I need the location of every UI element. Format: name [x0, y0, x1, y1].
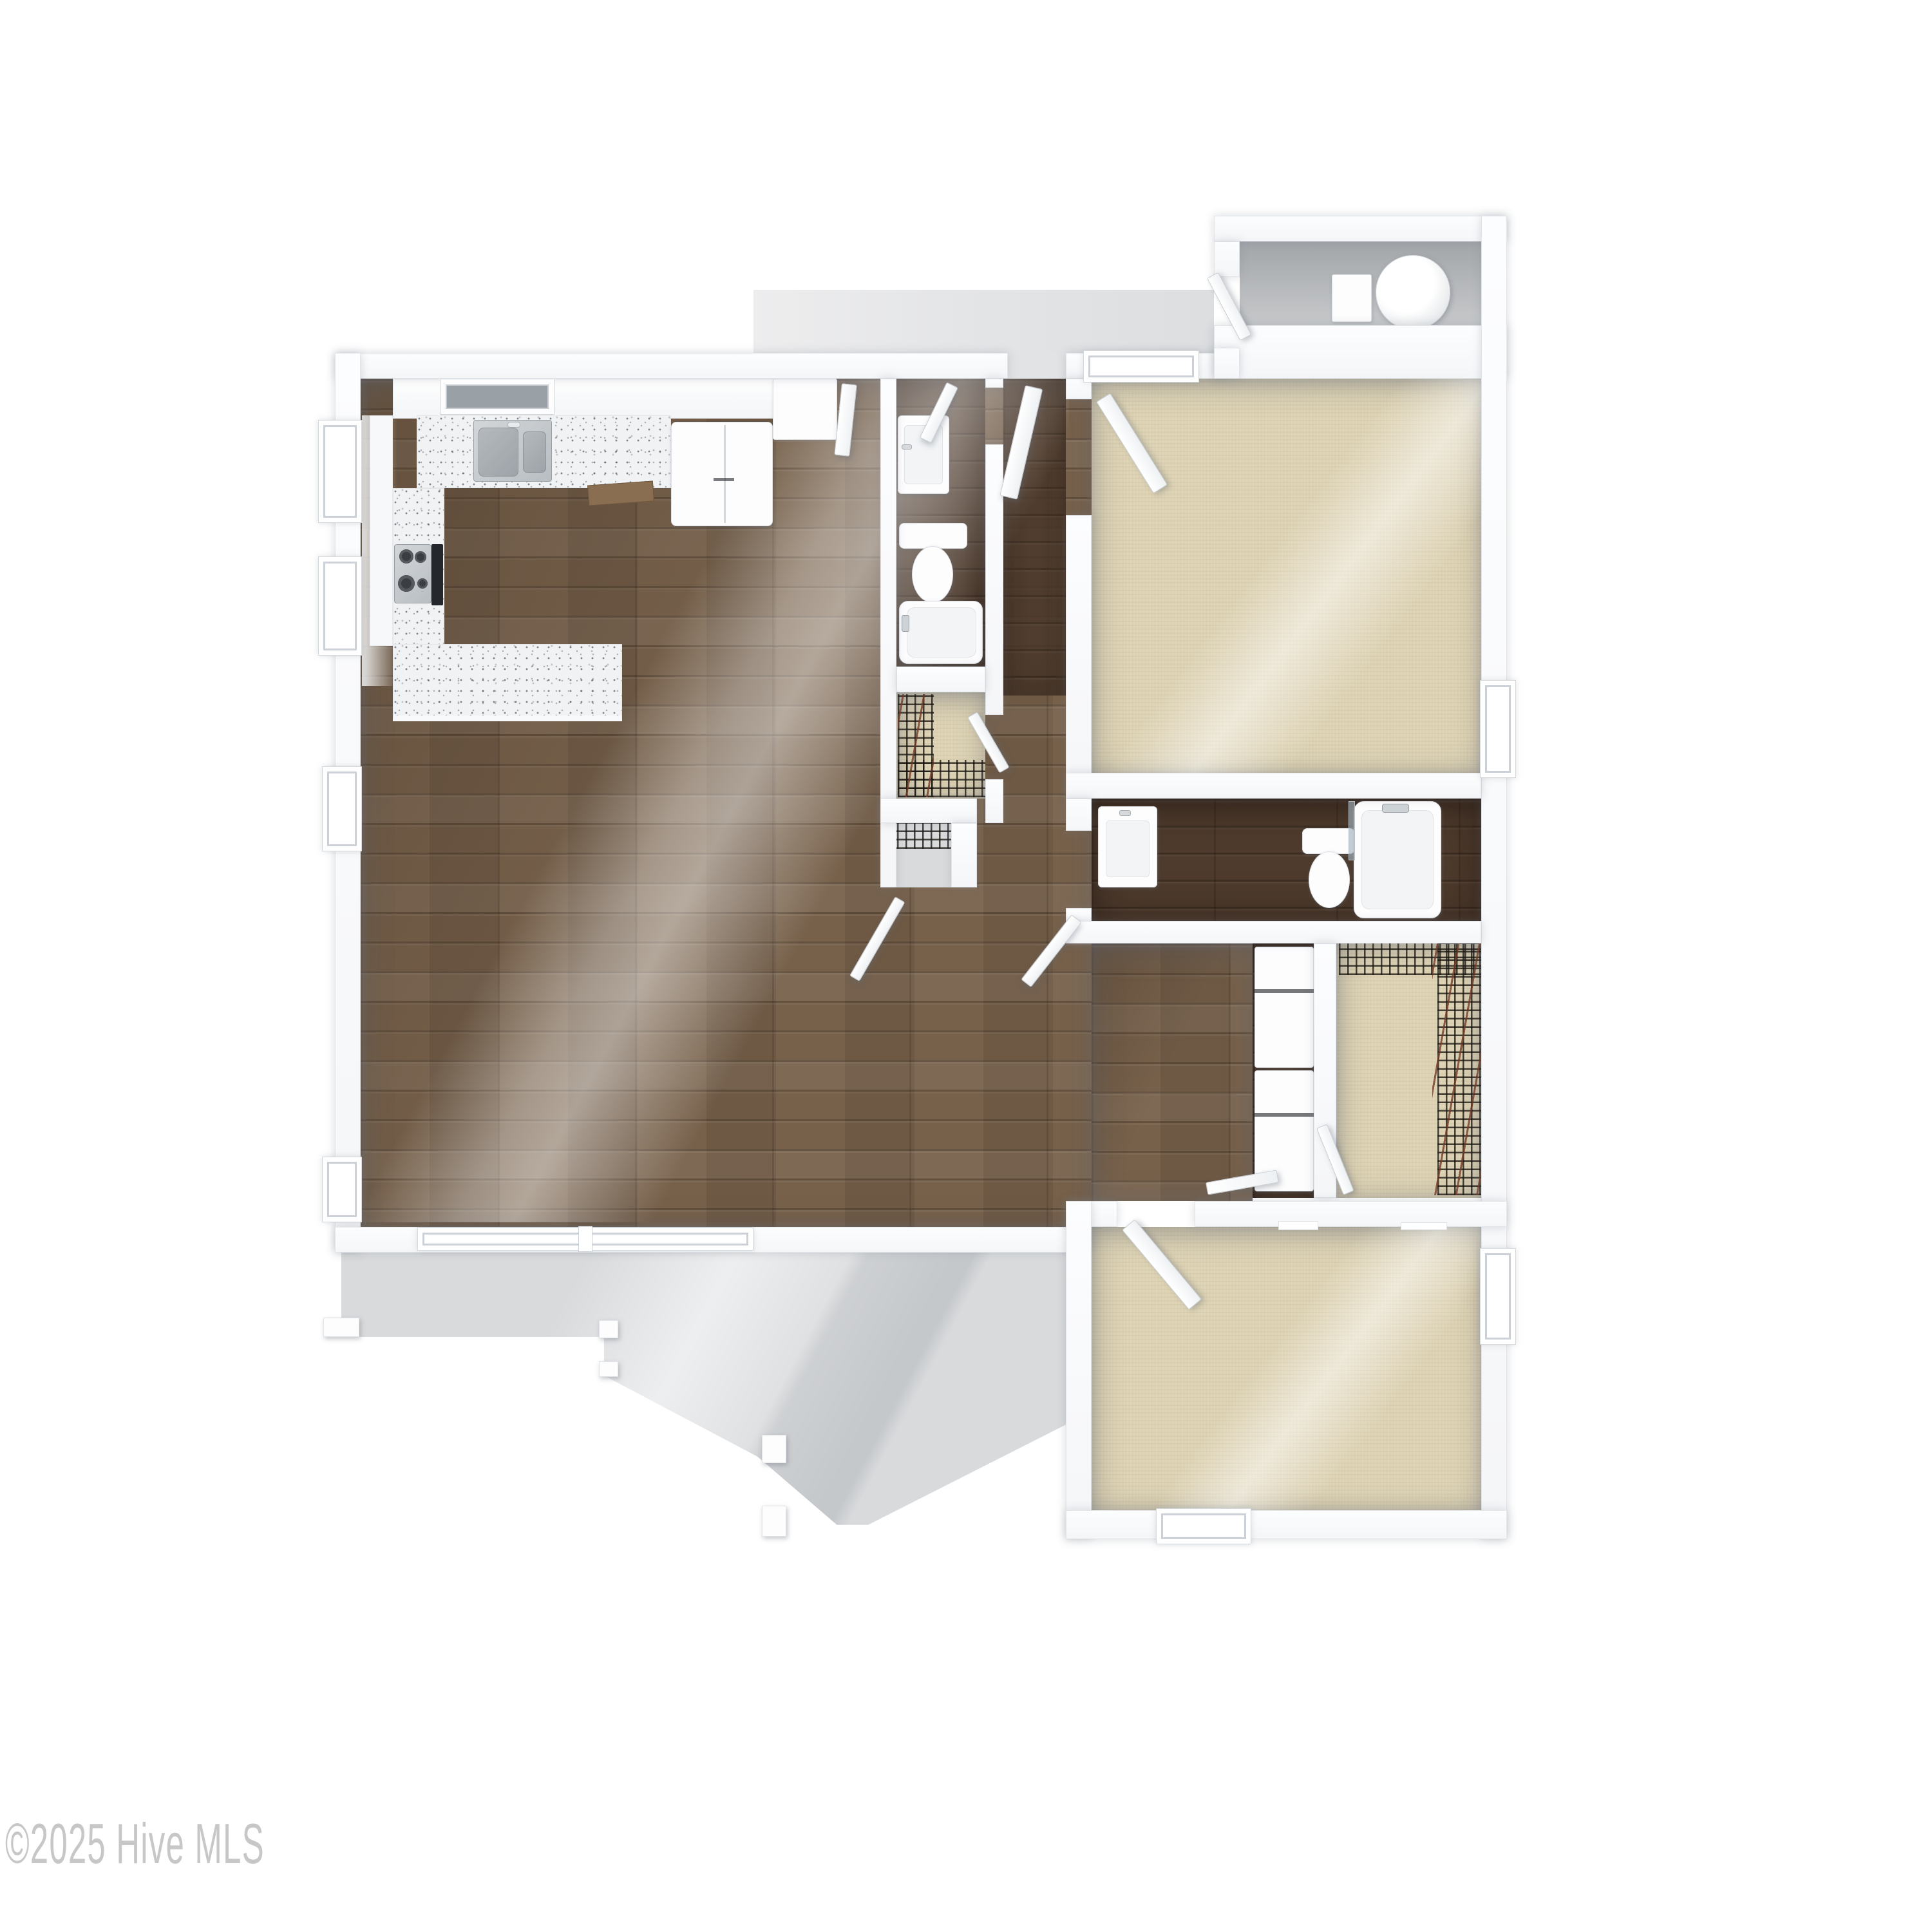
- storage-top-wall: [1214, 216, 1507, 241]
- bath1-toilet-tank: [899, 523, 967, 549]
- refrigerator-handles: [714, 478, 734, 481]
- kitchen-peninsula: [393, 644, 622, 721]
- bedroom-2-west-wall: [1066, 1201, 1092, 1539]
- bedroom-2-wall-sill: [1278, 1221, 1318, 1230]
- bath2-sink-basin: [1106, 820, 1150, 877]
- bath2-tub-basin: [1361, 810, 1434, 909]
- cooktop-burner: [417, 578, 428, 589]
- bedroom-2-wall-sill: [1401, 1222, 1447, 1230]
- bedroom-2-north-wall: [1195, 1201, 1507, 1227]
- washer: [1255, 947, 1314, 1068]
- bedroom-1-west-wall: [1066, 515, 1092, 799]
- sink-bowl-small: [523, 431, 546, 473]
- storage-left-wall: [1214, 241, 1240, 277]
- bedroom-2-rear-window: [1156, 1508, 1251, 1544]
- porch-post: [762, 1435, 786, 1463]
- refrigerator-door-seam: [724, 425, 726, 523]
- bath2-tub-faucet: [1382, 804, 1409, 813]
- porch-post: [323, 1318, 359, 1337]
- water-heater: [1376, 255, 1450, 330]
- storage-south-wall: [1214, 325, 1507, 379]
- bathroom-2-north-wall: [1066, 773, 1481, 799]
- utility-box: [1332, 274, 1372, 322]
- living-room-window: [322, 766, 362, 851]
- bathroom-2-west-wall: [1066, 799, 1092, 831]
- dryer-seam: [1255, 1113, 1314, 1117]
- bath2-toilet-tank: [1302, 828, 1355, 854]
- cooktop-burner: [415, 551, 426, 563]
- mls-watermark: ©2025 Hive MLS: [5, 1811, 265, 1877]
- sink-bowl-large: [478, 428, 518, 477]
- top-wall-left: [335, 353, 1008, 379]
- bedroom-1-side-window: [1480, 680, 1516, 778]
- bedroom-1-floor: [1092, 379, 1481, 773]
- living-room-window: [318, 420, 362, 523]
- bath2-faucet: [1119, 810, 1131, 816]
- kitchen-window: [440, 379, 554, 415]
- pantry-cabinet: [773, 379, 837, 440]
- washer-seam: [1255, 989, 1314, 993]
- bath2-toilet-bowl: [1309, 851, 1350, 908]
- refrigerator: [671, 422, 773, 526]
- entry-walkway-slab: [753, 290, 1214, 357]
- bedroom-1-top-window: [1083, 350, 1199, 383]
- sink-faucet: [507, 422, 520, 428]
- bathroom-1-east-wall: [985, 779, 1003, 823]
- floor-plan-render: [0, 0, 1932, 1932]
- storage-left-wall: [1214, 348, 1240, 379]
- bedroom-2-floor: [1092, 1227, 1481, 1510]
- bathroom-1-east-wall: [985, 379, 1003, 388]
- cooktop-burner: [399, 549, 413, 563]
- cooktop-burner: [398, 575, 415, 592]
- hall-corridor-floor: [1092, 943, 1253, 1201]
- bath2-shower-glass: [1349, 801, 1355, 860]
- bathroom-1-south-wall: [896, 667, 985, 692]
- porch-post: [599, 1361, 618, 1377]
- oven-front: [431, 544, 443, 605]
- bath1-tub-faucet: [902, 615, 909, 632]
- front-door-threshold: [1008, 353, 1066, 379]
- living-room-window: [322, 1157, 362, 1222]
- bedroom-2-south-wall: [1066, 1510, 1507, 1539]
- bedroom-2-side-window: [1480, 1248, 1516, 1345]
- patio-slab: [341, 1253, 1069, 1539]
- porch-post: [762, 1506, 786, 1537]
- living-room-window: [318, 556, 362, 656]
- closet1-hangers: [898, 694, 934, 797]
- bathroom-2-south-wall: [1066, 921, 1481, 943]
- bath1-faucet: [902, 444, 912, 450]
- linen-closet-panel: [951, 823, 977, 887]
- sliding-door-mullion: [578, 1226, 592, 1252]
- bathroom-1-east-wall: [985, 444, 1003, 715]
- hallway-floor-shadow: [1003, 379, 1066, 696]
- porch-post: [599, 1320, 618, 1338]
- bath1-tub-basin: [907, 607, 976, 658]
- kitchen-cabinet-face: [370, 415, 393, 646]
- closet-1-south-wall: [880, 799, 977, 823]
- closet2-hangers: [1432, 943, 1481, 1195]
- bath1-toilet-bowl: [912, 546, 953, 603]
